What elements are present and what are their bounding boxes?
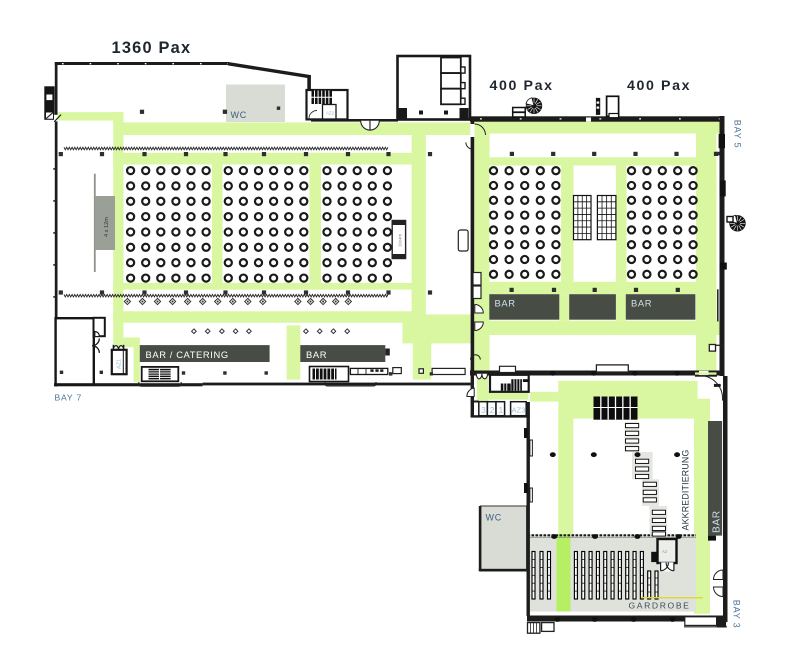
- svg-text:4 x 12m: 4 x 12m: [104, 217, 110, 237]
- svg-text:AZ2: AZ2: [326, 111, 335, 116]
- svg-text:BAY 3: BAY 3: [732, 600, 742, 629]
- svg-text:WC: WC: [231, 110, 248, 120]
- svg-text:1360 Pax: 1360 Pax: [112, 39, 192, 57]
- svg-text:1: 1: [499, 405, 504, 415]
- svg-text:3: 3: [481, 405, 486, 415]
- svg-text:AZ3: AZ3: [512, 406, 526, 415]
- svg-text:GARDROBE: GARDROBE: [629, 601, 691, 611]
- svg-text:BAY 7: BAY 7: [55, 393, 83, 403]
- svg-text:AKKREDITIERUNG: AKKREDITIERUNG: [681, 449, 691, 530]
- svg-text:WC: WC: [486, 513, 503, 523]
- svg-text:BAR: BAR: [631, 298, 652, 309]
- svg-text:400 Pax: 400 Pax: [490, 78, 554, 94]
- svg-text:400 Pax: 400 Pax: [627, 78, 691, 94]
- svg-text:BAR: BAR: [711, 510, 722, 533]
- svg-text:BAR: BAR: [495, 298, 516, 309]
- svg-text:2: 2: [490, 405, 495, 415]
- svg-text:BAR / CATERING: BAR / CATERING: [146, 349, 229, 360]
- svg-text:BAY 5: BAY 5: [733, 120, 743, 149]
- svg-text:BAR: BAR: [306, 349, 327, 360]
- svg-text:AZ1: AZ1: [117, 359, 123, 369]
- svg-text:A2: A2: [662, 549, 668, 554]
- svg-text:10x4m: 10x4m: [398, 233, 403, 247]
